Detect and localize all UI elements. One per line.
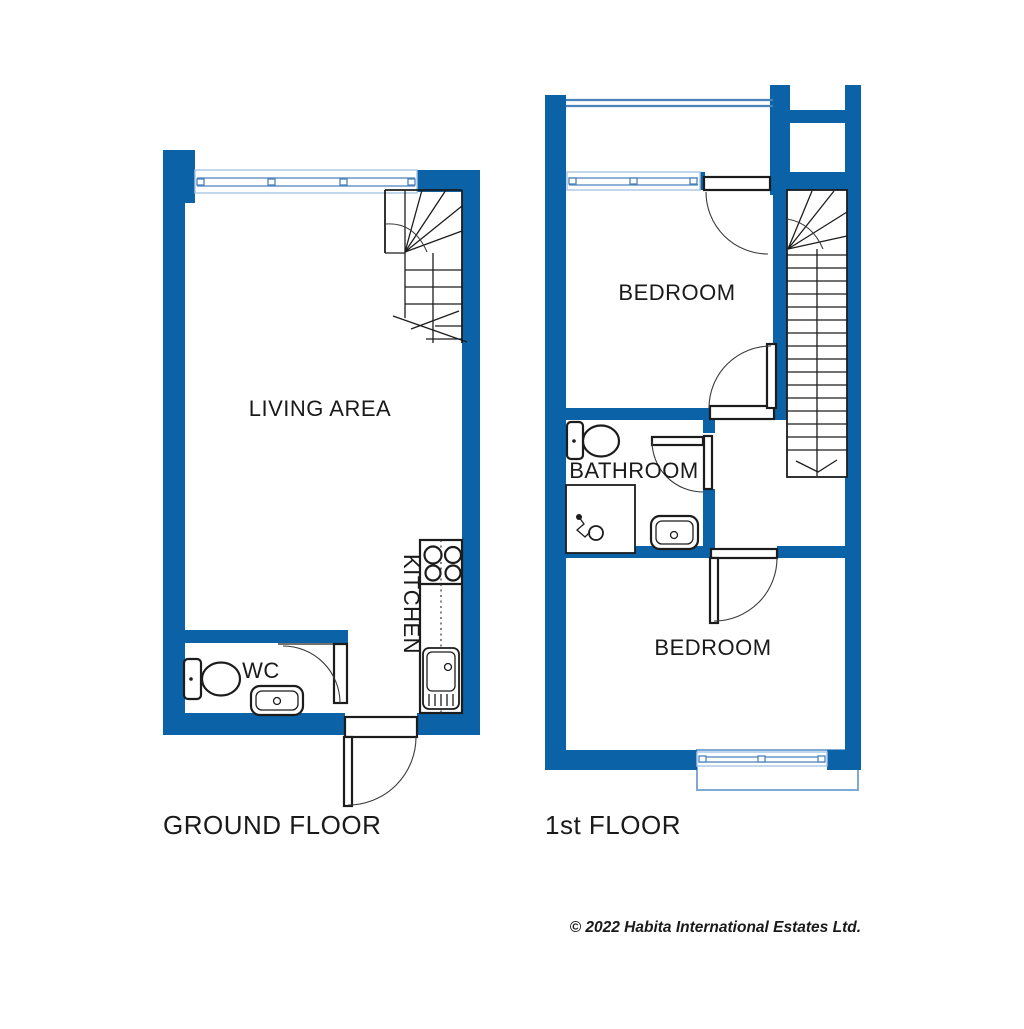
floorplan-canvas: WC LIVING AREA KITCHEN GROUND FLOOR (0, 0, 1024, 1024)
wc-sink-icon (251, 686, 303, 715)
bedroom1-terrace-door (704, 177, 770, 254)
first-floor-title: 1st FLOOR (545, 810, 681, 840)
wc-label: WC (242, 658, 280, 683)
shower-icon (566, 485, 635, 553)
floorplan-page: WC LIVING AREA KITCHEN GROUND FLOOR (0, 0, 1024, 1024)
entrance-door (344, 717, 417, 806)
bedroom2-label: BEDROOM (654, 635, 771, 660)
bathroom-label: BATHROOM (569, 458, 698, 483)
kitchen-sink-icon (423, 648, 459, 709)
ground-floor-plan: WC LIVING AREA KITCHEN GROUND FLOOR (163, 150, 480, 840)
living-area-window (195, 170, 417, 193)
kitchen-label: KITCHEN (399, 554, 424, 654)
staircase-first (787, 190, 847, 477)
bathroom-toilet-icon (567, 422, 619, 459)
bedroom1-landing-door (709, 344, 776, 419)
ground-floor-title: GROUND FLOOR (163, 810, 381, 840)
bedroom2-window (697, 752, 827, 766)
first-floor-plan: BATHROOM BEDROOM BEDROOM 1st FLOOR (545, 85, 861, 840)
wc-toilet-icon (184, 659, 240, 699)
bedroom1-label: BEDROOM (618, 280, 735, 305)
wc-room: WC (184, 644, 347, 715)
bedroom2-door (710, 549, 777, 623)
bathroom-sink-icon (651, 516, 698, 549)
kitchen-unit (420, 540, 462, 713)
terrace-edge (566, 100, 773, 106)
living-area-label: LIVING AREA (249, 396, 391, 421)
staircase-ground (385, 190, 467, 343)
copyright-text: © 2022 Habita International Estates Ltd. (570, 919, 861, 936)
bathroom: BATHROOM (566, 422, 715, 553)
bedroom1-window (567, 172, 700, 190)
